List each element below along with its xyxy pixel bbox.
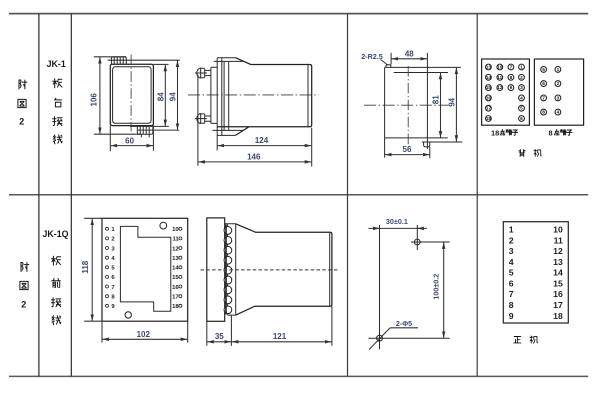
svg-text:17: 17 xyxy=(486,106,492,112)
svg-text:18: 18 xyxy=(491,129,499,138)
svg-text:146: 146 xyxy=(247,153,261,162)
svg-text:3: 3 xyxy=(509,246,514,256)
svg-text:12: 12 xyxy=(553,246,563,256)
svg-text:94: 94 xyxy=(447,97,456,106)
svg-text:102: 102 xyxy=(137,330,151,339)
svg-text:2: 2 xyxy=(509,235,514,245)
svg-text:1: 1 xyxy=(509,225,514,235)
svg-text:15: 15 xyxy=(172,275,179,281)
svg-text:4: 4 xyxy=(557,110,560,116)
svg-text:48: 48 xyxy=(405,49,414,58)
svg-text:6: 6 xyxy=(520,116,523,122)
svg-text:14: 14 xyxy=(172,266,179,272)
svg-text:8: 8 xyxy=(549,129,553,138)
svg-text:7: 7 xyxy=(542,95,545,101)
svg-text:35: 35 xyxy=(215,332,224,341)
svg-text:8: 8 xyxy=(510,75,513,81)
svg-text:2: 2 xyxy=(520,75,523,81)
svg-text:3: 3 xyxy=(557,95,560,101)
svg-text:16: 16 xyxy=(172,285,179,291)
svg-text:10: 10 xyxy=(172,227,179,233)
svg-text:124: 124 xyxy=(255,136,269,145)
svg-text:2: 2 xyxy=(557,81,560,87)
svg-text:1: 1 xyxy=(557,67,560,73)
svg-text:8: 8 xyxy=(509,300,514,310)
svg-text:2: 2 xyxy=(19,116,24,126)
svg-text:106: 106 xyxy=(90,93,99,107)
svg-text:15: 15 xyxy=(553,278,563,288)
svg-text:JK-1Q: JK-1Q xyxy=(43,229,69,239)
svg-text:94: 94 xyxy=(168,92,177,101)
svg-text:60: 60 xyxy=(125,136,134,145)
svg-text:13: 13 xyxy=(553,257,563,267)
svg-text:12: 12 xyxy=(497,85,503,91)
svg-text:10: 10 xyxy=(497,65,503,71)
svg-text:2-Φ5: 2-Φ5 xyxy=(396,319,412,328)
svg-text:5: 5 xyxy=(520,106,523,112)
svg-text:10: 10 xyxy=(553,225,563,235)
svg-text:5: 5 xyxy=(509,268,514,278)
svg-text:84: 84 xyxy=(156,92,165,101)
svg-text:17: 17 xyxy=(553,300,563,310)
svg-text:15: 15 xyxy=(486,85,492,91)
svg-text:18: 18 xyxy=(553,311,563,321)
svg-text:56: 56 xyxy=(403,145,412,154)
svg-text:121: 121 xyxy=(273,332,287,341)
svg-text:3: 3 xyxy=(520,85,523,91)
svg-text:6: 6 xyxy=(509,278,514,288)
svg-text:14: 14 xyxy=(486,75,492,81)
svg-text:16: 16 xyxy=(486,95,492,101)
svg-text:16: 16 xyxy=(553,289,563,299)
svg-text:11: 11 xyxy=(172,237,179,243)
svg-text:18: 18 xyxy=(172,304,179,310)
svg-text:18: 18 xyxy=(486,116,492,122)
svg-text:13: 13 xyxy=(486,65,492,71)
svg-text:4: 4 xyxy=(520,95,523,101)
svg-text:100±0.2: 100±0.2 xyxy=(431,274,440,300)
svg-text:12: 12 xyxy=(172,246,179,252)
svg-text:118: 118 xyxy=(81,260,90,273)
svg-text:11: 11 xyxy=(497,75,502,81)
svg-text:2-R2.5: 2-R2.5 xyxy=(361,52,383,61)
svg-text:7: 7 xyxy=(510,65,513,71)
svg-text:5: 5 xyxy=(542,67,545,73)
svg-text:2: 2 xyxy=(21,299,26,309)
svg-text:11: 11 xyxy=(554,235,563,245)
svg-text:1: 1 xyxy=(520,65,523,71)
svg-text:JK-1: JK-1 xyxy=(47,59,66,69)
svg-text:6: 6 xyxy=(542,81,545,87)
svg-text:9: 9 xyxy=(509,311,514,321)
svg-text:81: 81 xyxy=(431,95,440,104)
svg-text:9: 9 xyxy=(510,85,513,91)
svg-text:14: 14 xyxy=(553,268,563,278)
svg-text:17: 17 xyxy=(172,295,179,301)
svg-text:13: 13 xyxy=(172,256,179,262)
svg-text:7: 7 xyxy=(509,289,514,299)
svg-text:30±0.1: 30±0.1 xyxy=(386,217,408,226)
svg-text:4: 4 xyxy=(509,257,514,267)
svg-text:8: 8 xyxy=(542,110,545,116)
